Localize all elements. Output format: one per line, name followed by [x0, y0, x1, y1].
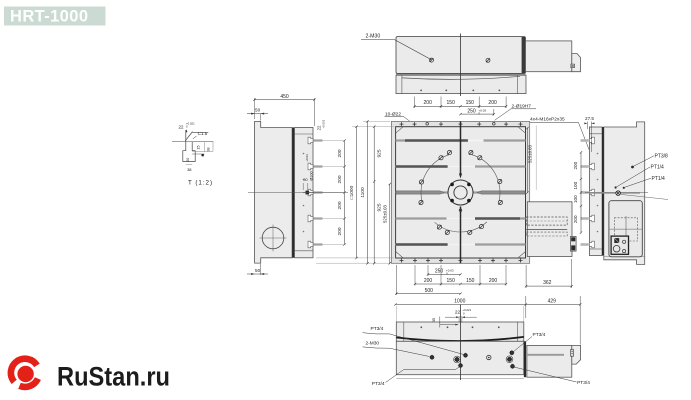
svg-text:925: 925	[377, 149, 383, 157]
svg-text:2-M30: 2-M30	[366, 341, 380, 347]
svg-text:4x4-M16xP2x35: 4x4-M16xP2x35	[530, 117, 565, 123]
svg-text:100: 100	[573, 195, 578, 203]
svg-text:35: 35	[432, 318, 436, 322]
svg-text:PT1/4: PT1/4	[651, 165, 665, 171]
svg-text:250: 250	[467, 109, 476, 115]
svg-text:T (1:2): T (1:2)	[188, 180, 213, 187]
svg-text:PT3/4: PT3/4	[533, 332, 546, 338]
svg-text:Ø100: Ø100	[309, 171, 313, 180]
svg-text:50: 50	[255, 108, 261, 113]
svg-text:22: 22	[455, 309, 461, 315]
svg-text:C1.5: C1.5	[198, 131, 208, 136]
svg-text:200: 200	[424, 278, 433, 284]
svg-text:450: 450	[280, 94, 289, 100]
svg-text:1000: 1000	[454, 299, 465, 305]
svg-text:150: 150	[466, 278, 475, 284]
svg-text:200: 200	[573, 161, 578, 169]
svg-text:20: 20	[186, 158, 190, 162]
svg-text:500: 500	[425, 288, 434, 294]
svg-text:250: 250	[435, 269, 444, 275]
svg-text:200: 200	[337, 227, 343, 235]
svg-text:50: 50	[255, 268, 261, 273]
svg-text:HRT-1000: HRT-1000	[10, 8, 88, 26]
svg-text:1100: 1100	[360, 187, 366, 198]
svg-text:200: 200	[337, 201, 343, 209]
svg-text:2-M30: 2-M30	[366, 33, 381, 39]
svg-text:200: 200	[424, 100, 433, 106]
svg-text:PT3/4: PT3/4	[372, 381, 385, 387]
svg-text:15: 15	[197, 146, 201, 150]
svg-text:150: 150	[447, 278, 456, 284]
svg-text:150: 150	[447, 100, 456, 106]
svg-text:200: 200	[337, 175, 343, 183]
svg-text:+0.001: +0.001	[322, 119, 326, 128]
svg-text:200: 200	[337, 149, 343, 157]
svg-text:PT3/4: PT3/4	[371, 326, 384, 332]
svg-text:150: 150	[466, 100, 475, 106]
svg-text:200: 200	[573, 215, 578, 223]
svg-text:200: 200	[488, 100, 497, 106]
svg-text:22: 22	[179, 124, 184, 129]
svg-text:PT1/4: PT1/4	[652, 176, 666, 182]
svg-text:429: 429	[548, 299, 557, 305]
svg-text:PT3/8: PT3/8	[655, 154, 669, 160]
svg-text:PT3/4: PT3/4	[577, 380, 590, 386]
svg-text:525±0.03: 525±0.03	[528, 144, 533, 163]
svg-text:+0.03: +0.03	[305, 154, 309, 162]
svg-text:□1000: □1000	[349, 185, 355, 199]
svg-text:38: 38	[187, 167, 192, 172]
svg-text:100: 100	[573, 181, 578, 189]
svg-text:27.5: 27.5	[585, 116, 594, 121]
svg-text:2-Ø19H7: 2-Ø19H7	[512, 103, 532, 109]
svg-text:38: 38	[207, 148, 211, 152]
svg-text:30: 30	[303, 178, 307, 182]
svg-text:362: 362	[543, 280, 552, 286]
svg-text:200: 200	[489, 278, 498, 284]
svg-text:RuStan.ru: RuStan.ru	[57, 362, 170, 392]
svg-text:525±0.03: 525±0.03	[382, 204, 387, 223]
